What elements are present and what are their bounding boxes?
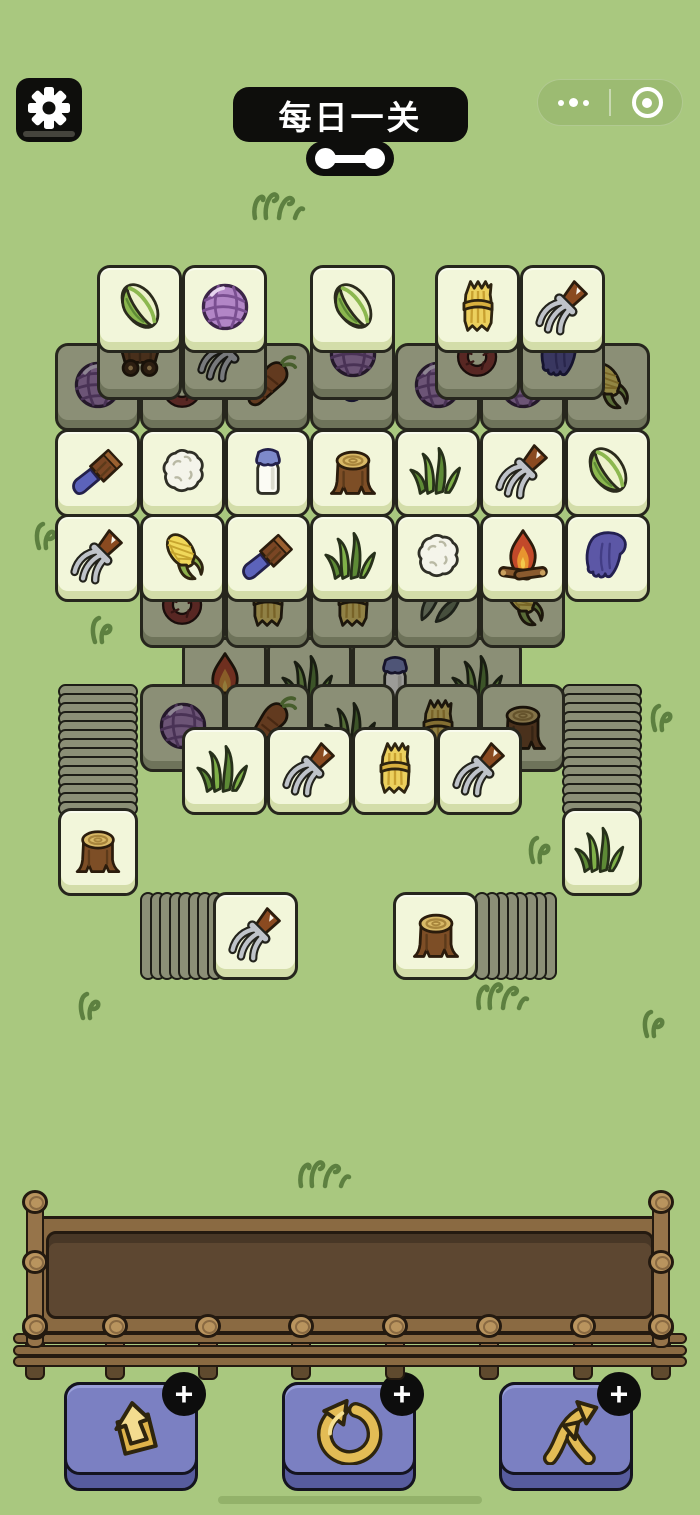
fence-post-knob — [102, 1314, 128, 1338]
tile-corn[interactable] — [140, 514, 225, 602]
cabbage-icon — [110, 276, 170, 336]
shuffle-icon — [530, 1393, 602, 1465]
grass-tuft-decoration — [296, 1154, 352, 1190]
tile-brush[interactable] — [225, 514, 310, 602]
dumbbell-icon — [306, 141, 394, 176]
fence-post-knob — [476, 1314, 502, 1338]
record-icon — [632, 87, 663, 118]
tile-glove[interactable] — [565, 514, 650, 602]
grass-icon — [573, 820, 631, 878]
tile-pitchfork[interactable] — [213, 892, 298, 980]
fence-post-knob — [22, 1314, 48, 1338]
fence-post-knob — [288, 1314, 314, 1338]
tile-brush[interactable] — [55, 429, 140, 517]
fence-rail — [13, 1345, 687, 1356]
cauliflower-icon — [153, 440, 213, 500]
undo-button[interactable]: + — [282, 1382, 416, 1491]
stump-icon — [323, 440, 383, 500]
tray-post-knob — [22, 1190, 48, 1214]
tile-hay[interactable] — [352, 727, 437, 815]
hay-icon — [448, 276, 508, 336]
tile-cauliflower[interactable] — [395, 514, 480, 602]
tile-pitchfork[interactable] — [267, 727, 352, 815]
eject-button[interactable]: + — [64, 1382, 198, 1491]
tile-pitchfork[interactable] — [520, 265, 605, 353]
tile-grass[interactable] — [182, 727, 267, 815]
pitchfork-icon — [533, 276, 593, 336]
game-screen: 每日一关 — [0, 0, 700, 1515]
tile-grass[interactable] — [395, 429, 480, 517]
grass-tuft-decoration — [638, 1004, 668, 1040]
wechat-capsule — [537, 79, 683, 126]
yarn-icon — [195, 276, 255, 336]
fence-rail — [13, 1356, 687, 1367]
tile-grass[interactable] — [562, 808, 642, 896]
level-title: 每日一关 — [279, 91, 423, 139]
tile-milk[interactable] — [225, 429, 310, 517]
fence-post-knob — [195, 1314, 221, 1338]
tile-pitchfork[interactable] — [437, 727, 522, 815]
tray-post-knob — [648, 1190, 674, 1214]
grass-icon — [323, 525, 383, 585]
grass-tuft-decoration — [474, 976, 530, 1012]
shuffle-button[interactable]: + — [499, 1382, 633, 1491]
shuffle-add-badge[interactable]: + — [597, 1372, 641, 1416]
tile-pitchfork[interactable] — [480, 429, 565, 517]
tray-post-knob — [648, 1250, 674, 1274]
tile-cabbage[interactable] — [310, 265, 395, 353]
tile-stump[interactable] — [393, 892, 478, 980]
cabbage-icon — [323, 276, 383, 336]
tray-post-knob — [22, 1250, 48, 1274]
settings-button[interactable] — [16, 78, 82, 142]
glove-icon — [578, 525, 638, 585]
grass-icon — [408, 440, 468, 500]
tile-cabbage[interactable] — [565, 429, 650, 517]
grass-tuft-decoration — [646, 698, 676, 734]
pitchfork-icon — [493, 440, 553, 500]
more-button[interactable] — [537, 79, 609, 126]
eject-icon — [95, 1393, 167, 1465]
grass-tuft-decoration — [86, 610, 116, 646]
level-title-pill: 每日一关 — [233, 87, 468, 142]
tile-pitchfork[interactable] — [55, 514, 140, 602]
tile-cabbage[interactable] — [97, 265, 182, 353]
milk-icon — [238, 440, 298, 500]
pitchfork-icon — [226, 903, 286, 963]
grass-tuft-decoration — [524, 830, 554, 866]
ellipsis-icon — [558, 100, 564, 106]
record-button[interactable] — [611, 79, 683, 126]
hay-icon — [365, 738, 425, 798]
tile-cauliflower[interactable] — [140, 429, 225, 517]
grass-tuft-decoration — [74, 986, 104, 1022]
cauliflower-icon — [408, 525, 468, 585]
campfire-icon — [493, 525, 553, 585]
tile-stump[interactable] — [310, 429, 395, 517]
fence-post-knob — [570, 1314, 596, 1338]
tile-stump[interactable] — [58, 808, 138, 896]
undo-icon — [313, 1393, 385, 1465]
grass-icon — [195, 738, 255, 798]
fence-post-knob — [382, 1314, 408, 1338]
grass-tuft-decoration — [250, 186, 306, 222]
tile-campfire[interactable] — [480, 514, 565, 602]
fence-post-knob — [648, 1314, 674, 1338]
stump-icon — [69, 820, 127, 878]
pitchfork-icon — [280, 738, 340, 798]
tile-grass[interactable] — [310, 514, 395, 602]
pitchfork-icon — [68, 525, 128, 585]
tray-slot-area — [46, 1231, 654, 1319]
tile-yarn[interactable] — [182, 265, 267, 353]
tile-hay[interactable] — [435, 265, 520, 353]
brush-icon — [238, 525, 298, 585]
gear-icon — [27, 87, 71, 134]
cabbage-icon — [578, 440, 638, 500]
stump-icon — [406, 903, 466, 963]
corn-icon — [153, 525, 213, 585]
brush-icon — [68, 440, 128, 500]
ground-shadow — [218, 1496, 482, 1504]
pitchfork-icon — [450, 738, 510, 798]
